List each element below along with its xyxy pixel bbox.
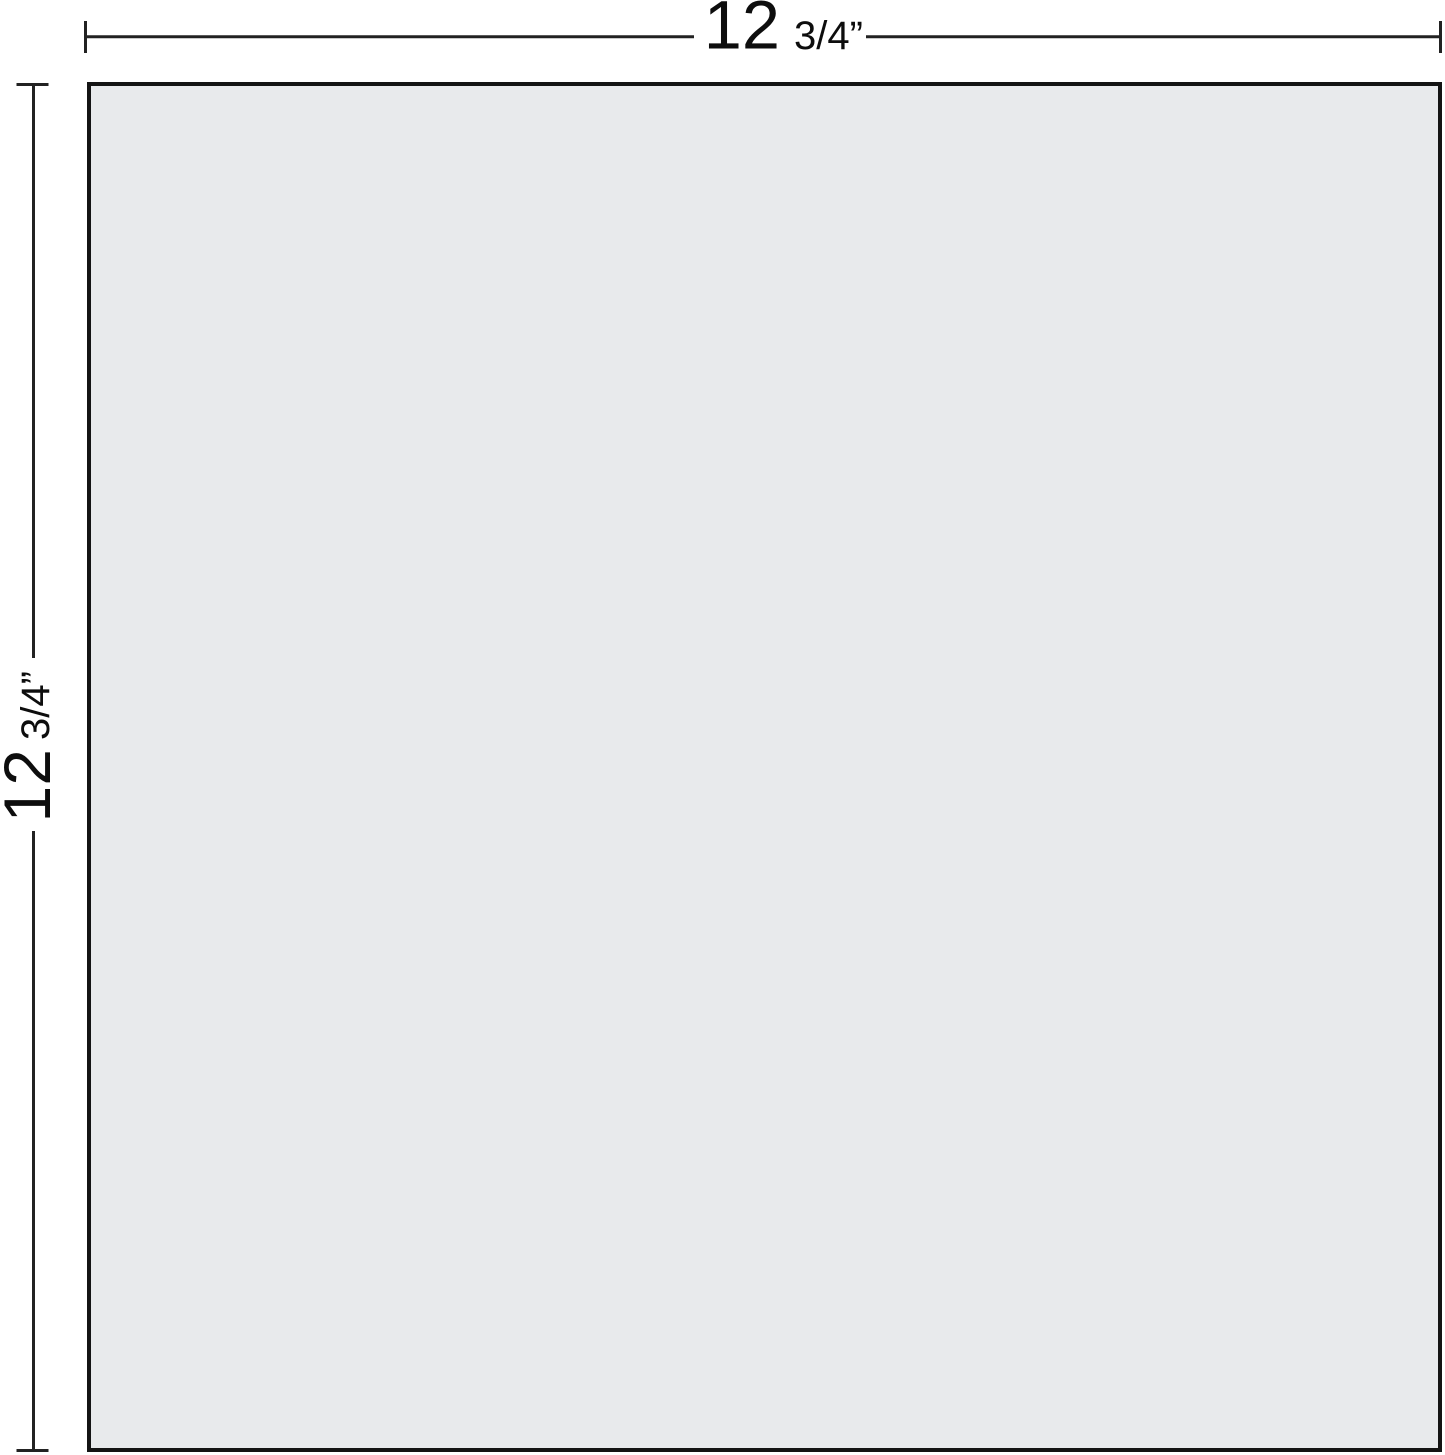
svg-text:12: 12 — [0, 749, 64, 822]
svg-text:3/4”: 3/4” — [794, 14, 863, 58]
svg-text:12: 12 — [704, 0, 780, 63]
svg-text:3/4”: 3/4” — [14, 671, 58, 740]
